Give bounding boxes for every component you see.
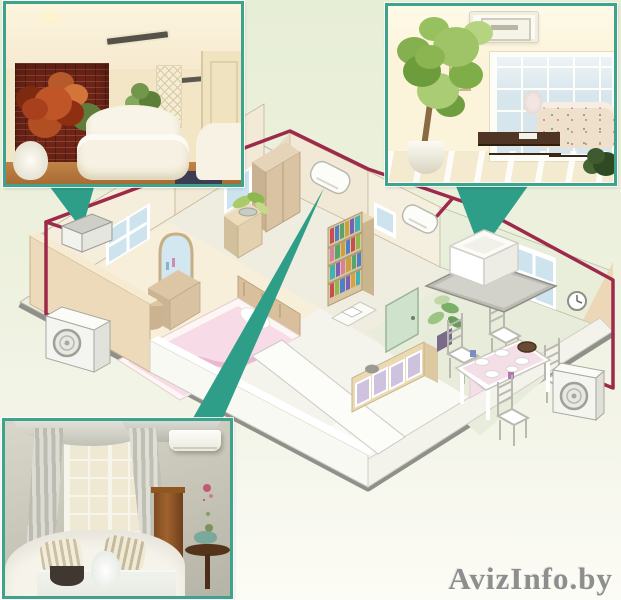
inset1-armchair	[196, 123, 241, 181]
advert-canvas: AvizInfo.by	[0, 0, 621, 600]
inset1-floor-vase	[13, 141, 48, 181]
outdoor-unit-right	[553, 363, 604, 420]
inset1-green-plant	[131, 83, 149, 99]
inset2-dark-shrub	[587, 148, 605, 164]
photo-inset-bottom-left	[2, 418, 233, 599]
inset2-book-on-table	[519, 133, 537, 138]
watermark-text: AvizInfo.by	[448, 561, 613, 597]
inset2-ceiling-cassette-unit	[469, 11, 539, 43]
inset3-dark-bowl	[50, 566, 84, 585]
inset3-flowers	[203, 484, 211, 492]
inset3-side-table	[185, 544, 230, 590]
photo-inset-top-left	[3, 1, 244, 187]
inset1-sofa-seat	[77, 134, 190, 181]
inset1-red-foliage-plant	[22, 98, 48, 120]
inset3-white-pitcher	[91, 551, 120, 591]
inset2-picture-frame	[449, 63, 471, 92]
inset3-compote-dish	[194, 531, 217, 543]
wall-clock	[568, 292, 586, 310]
inset2-large-plant	[415, 45, 445, 69]
photo-inset-top-right	[385, 3, 617, 186]
inset2-flower-vase	[524, 91, 542, 114]
inset3-wall-split-unit	[169, 430, 221, 451]
